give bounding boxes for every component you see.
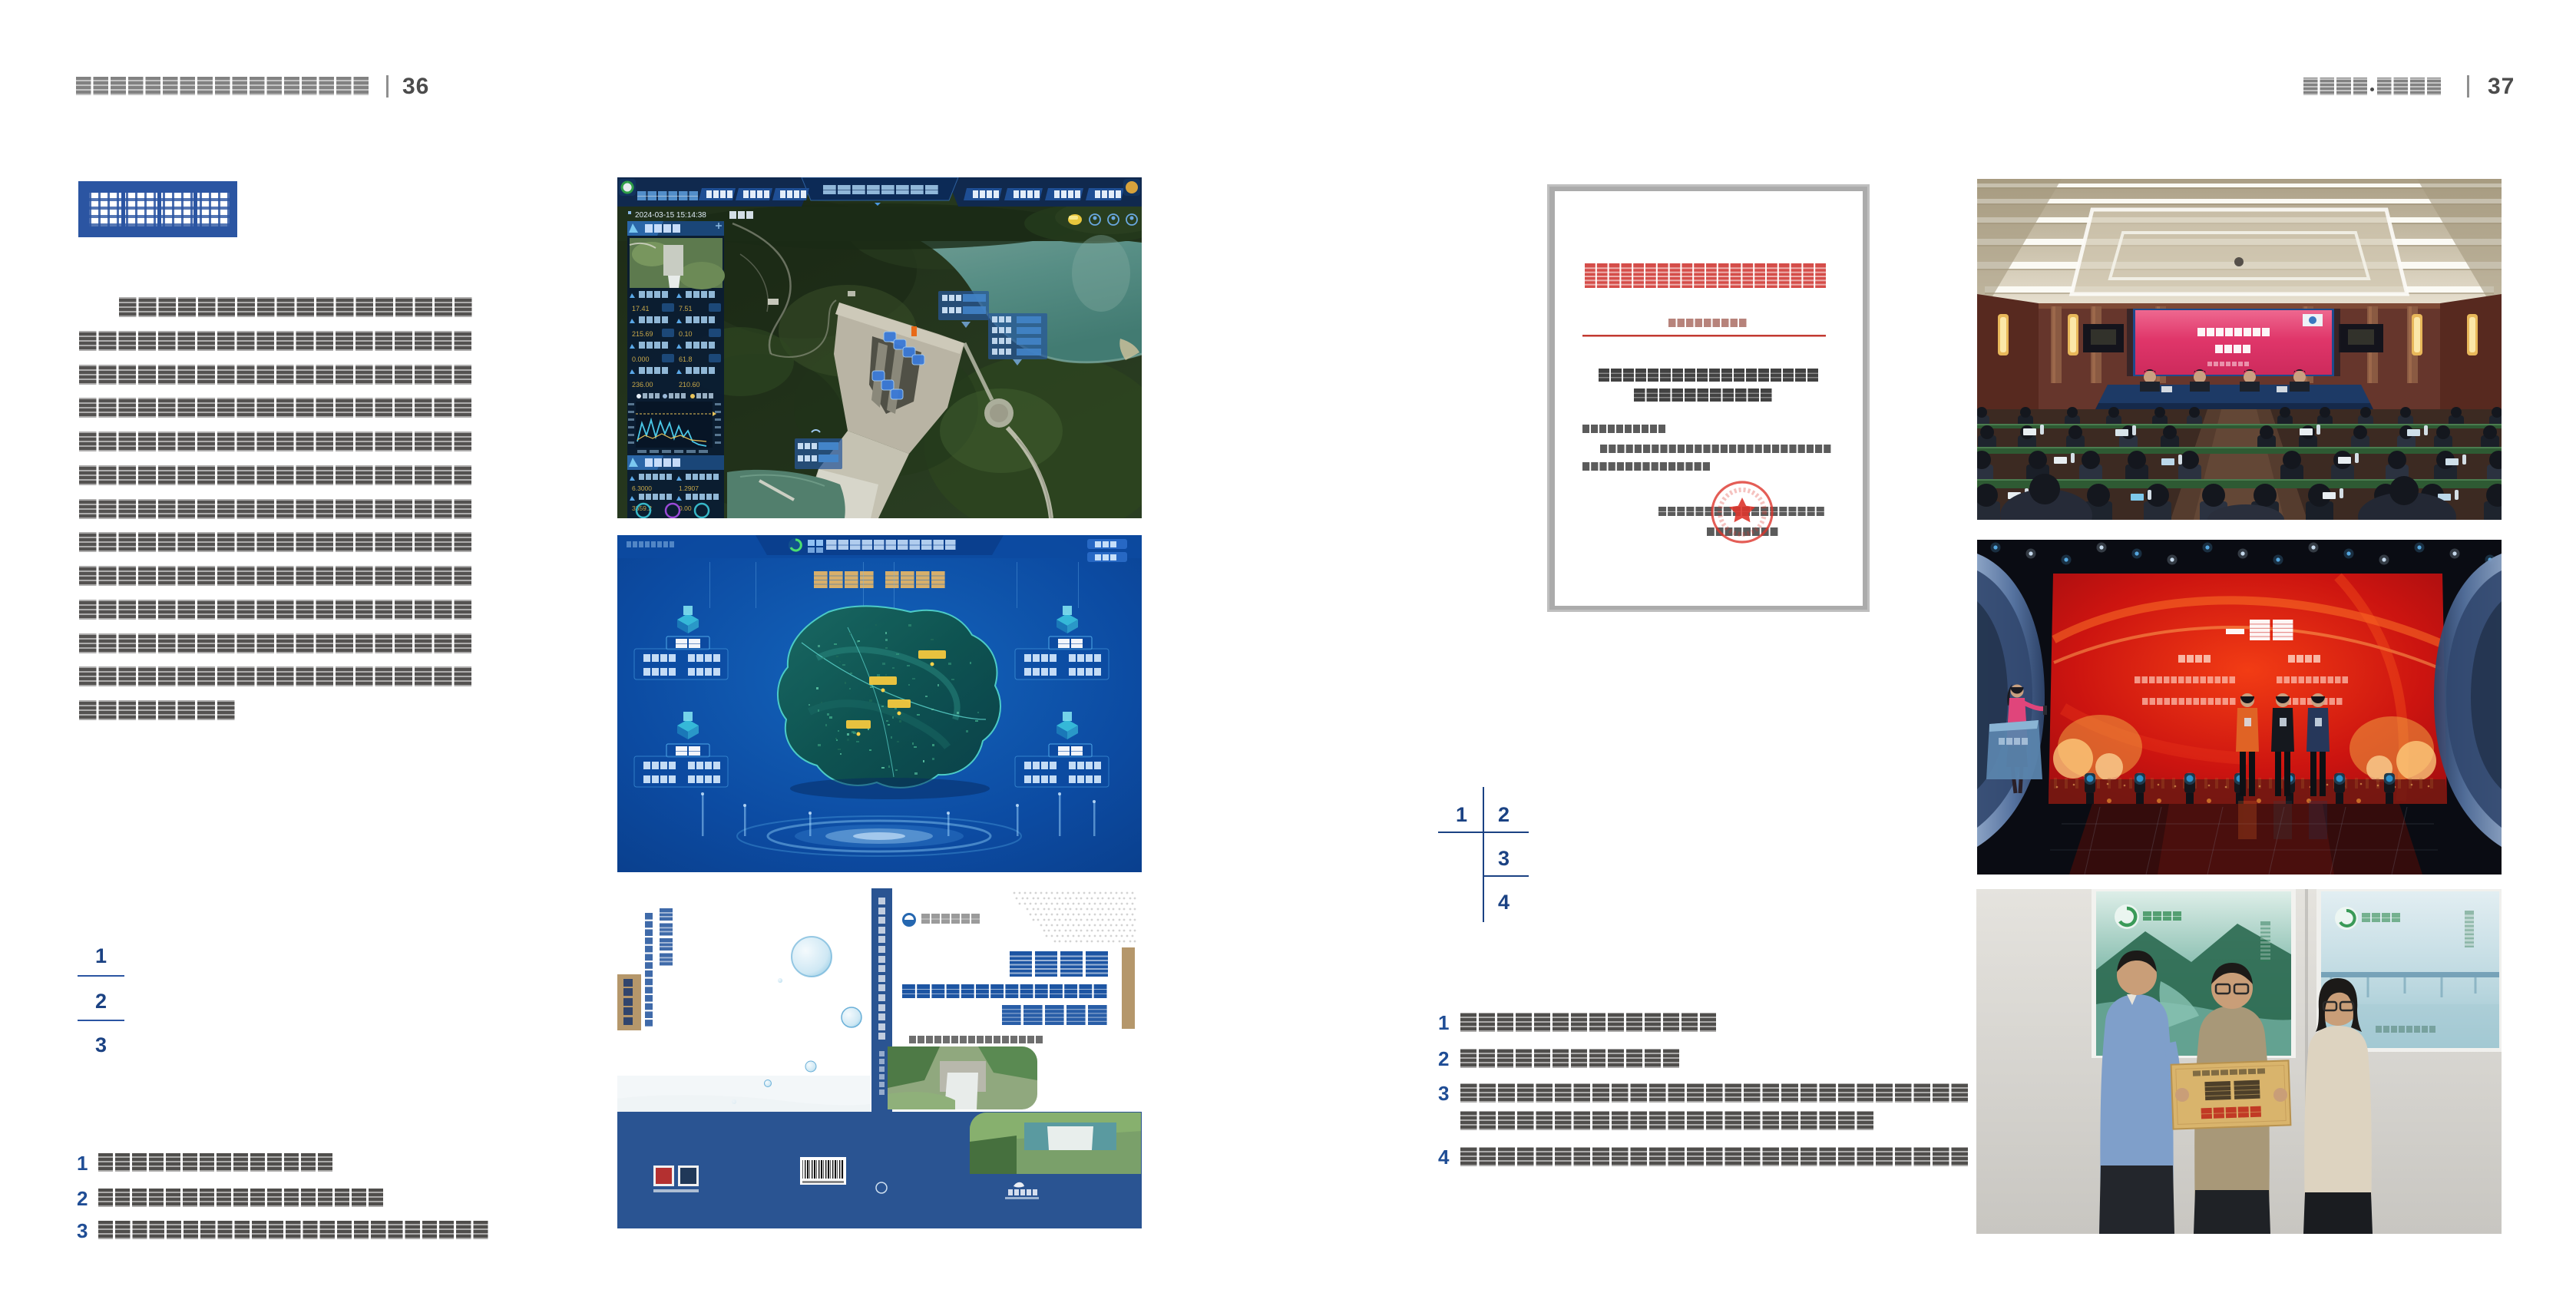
svg-text:0.000: 0.000 <box>632 355 650 363</box>
svg-text:61.8: 61.8 <box>679 355 693 363</box>
svg-text:6.3000: 6.3000 <box>632 484 652 492</box>
svg-text:2024-03-15 15:14:38: 2024-03-15 15:14:38 <box>635 211 706 220</box>
svg-text:1.2907: 1.2907 <box>679 484 699 492</box>
svg-text:210.60: 210.60 <box>679 381 700 388</box>
svg-text:7.51: 7.51 <box>679 305 693 312</box>
svg-text:0.10: 0.10 <box>679 330 693 338</box>
svg-text:215.69: 215.69 <box>632 330 653 338</box>
svg-text:17.41: 17.41 <box>632 305 650 312</box>
svg-text:0.00: 0.00 <box>679 504 692 512</box>
svg-text:236.00: 236.00 <box>632 381 653 388</box>
